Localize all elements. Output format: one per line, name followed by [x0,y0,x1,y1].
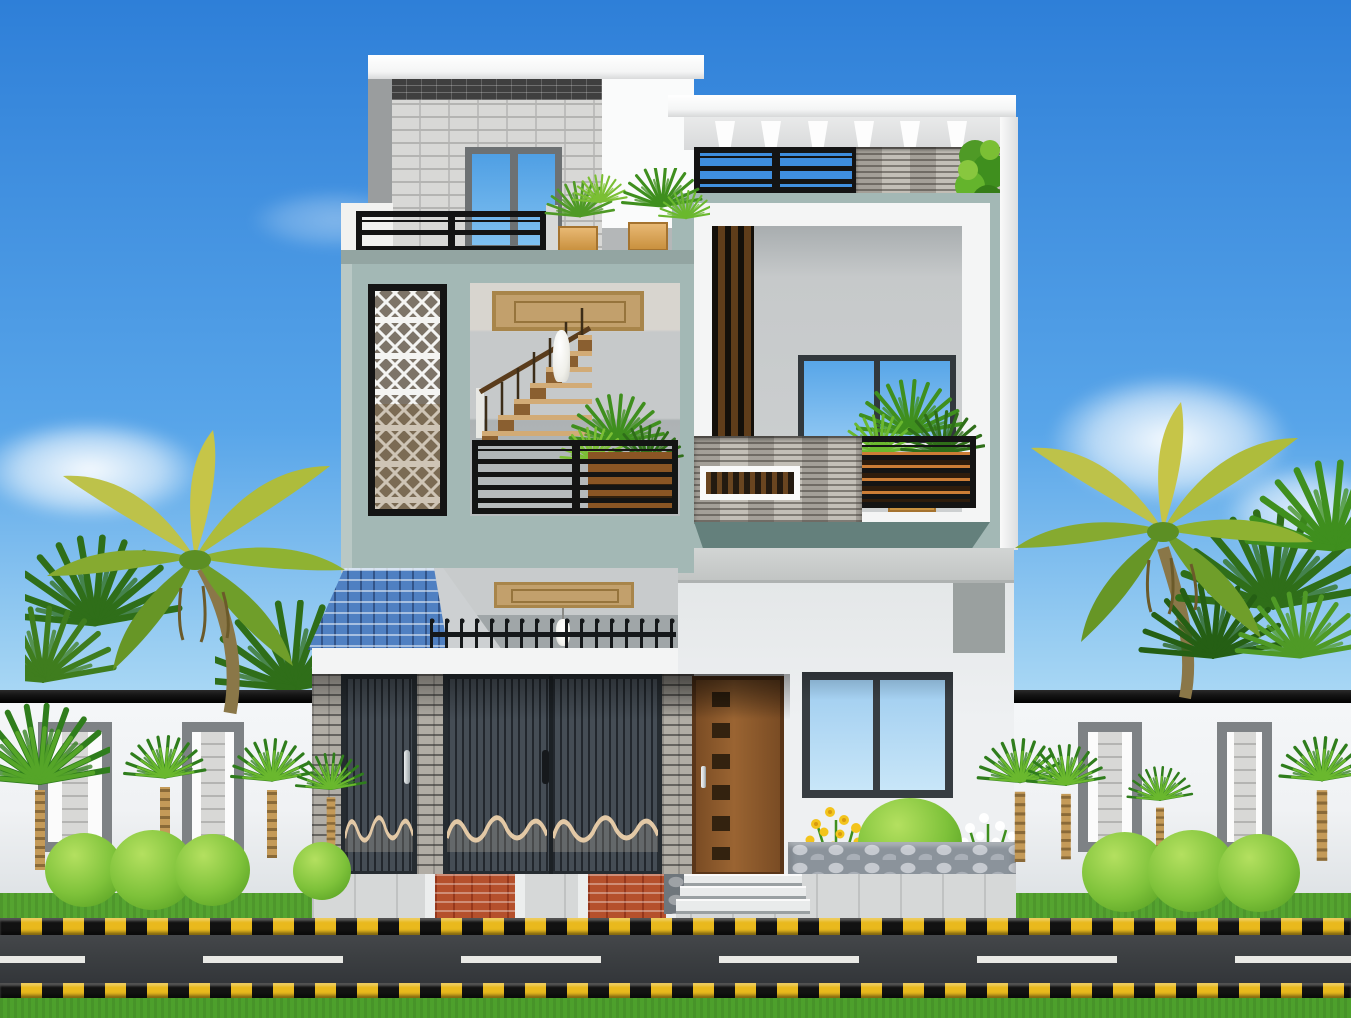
spear-fence [430,618,676,650]
garden-bush [293,842,351,900]
entrance-step [676,899,810,914]
parapet-cutout [854,121,874,148]
parapet-cutout [761,121,781,148]
right-tower-roof-slab [668,95,1016,117]
architectural-render-scene [0,0,1351,1018]
decor-statue [553,330,570,382]
soffit-shadow [662,674,784,718]
ceiling-panel [494,582,634,608]
garden-bush [1218,834,1300,912]
garden-bush [175,834,250,906]
pavement-white-strip [578,874,588,918]
parapet-cutout [715,121,735,148]
gate-handle [542,750,549,784]
ceiling-panel-inner [511,589,619,603]
fence-rail [430,632,676,637]
soffit-shadow [802,672,953,700]
entrance-step [680,886,806,899]
roof-terrace-railing [694,147,858,193]
terrace-railing [356,211,546,252]
railing-post [772,150,780,190]
large-palm-left-icon [25,418,355,718]
pavement-white-strip [515,874,525,918]
gate-handle [404,750,410,784]
wood-slat-screen [712,226,754,448]
left-block-slab-band [341,250,694,264]
parapet-cutout [808,121,828,148]
railing-post [448,214,455,249]
grass-foreground [0,998,1351,1018]
wall-panel [1217,722,1272,852]
terrace-post-left [341,205,356,252]
door-handle [701,766,706,788]
parapet-cutout [900,121,920,148]
left-tower-roof-slab [368,55,704,79]
red-paver-panel [588,874,666,918]
hazard-curb-upper [0,918,1351,935]
right-tower-floor-slab [668,548,1014,583]
balcony-railing [852,436,976,508]
parapet-slot [700,466,800,500]
red-paver-panel [435,874,515,918]
pavement-white-strip [425,874,435,918]
terrace-planter [558,226,598,252]
asphalt-road [0,935,1351,983]
railing-post [572,443,580,511]
left-tower-dark-brick-band [392,79,602,100]
lane-marking [0,956,1351,963]
gate-wave-motif [553,796,658,852]
entrance-step [684,874,802,886]
balcony-underside-shadow [694,522,990,548]
large-palm-right-icon [995,388,1351,700]
gate-wave-motif [447,796,547,852]
hazard-curb-lower [0,983,1351,998]
left-balcony-railing [472,440,678,514]
terrace-planter [628,222,668,251]
jali-lattice-panel [368,284,447,516]
wall-panel-stone [1234,732,1256,842]
